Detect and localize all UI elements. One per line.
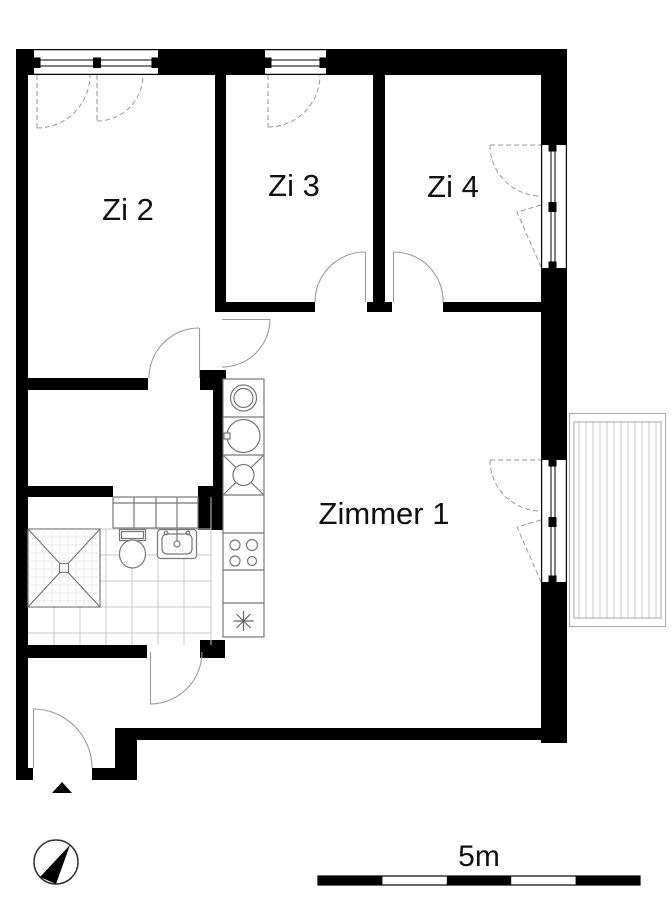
door-swing-arc bbox=[150, 652, 202, 704]
window-swing-arc bbox=[37, 75, 90, 128]
window-jamb bbox=[320, 58, 327, 69]
door-bathroom bbox=[150, 652, 202, 704]
shower-icon bbox=[28, 529, 100, 607]
door-swing-arc bbox=[33, 709, 92, 768]
window-zi2 bbox=[34, 50, 158, 128]
entrance-arrow-icon bbox=[52, 782, 72, 793]
floor-plan-page: Zi 2 Zi 3 Zi 4 Zimmer 1 5m bbox=[0, 0, 672, 908]
wall-segment bbox=[326, 49, 567, 75]
window-jamb bbox=[152, 58, 159, 69]
kitchen-counter-outline bbox=[223, 379, 264, 637]
door-zi4 bbox=[394, 252, 444, 302]
wall-segment bbox=[16, 645, 147, 658]
door-entrance bbox=[33, 709, 92, 793]
wall-segment bbox=[158, 49, 265, 75]
window-swing-arc bbox=[97, 75, 143, 121]
washbasin-icon bbox=[158, 530, 197, 559]
door-swing-arc bbox=[394, 252, 443, 302]
room-label-zi4: Zi 4 bbox=[427, 169, 479, 204]
window-jamb bbox=[549, 460, 557, 467]
walls bbox=[16, 49, 567, 780]
scale-bar: 5m bbox=[318, 840, 640, 885]
window-swing-arc bbox=[490, 460, 541, 511]
door-swing-arc bbox=[315, 252, 365, 302]
scale-bar-label: 5m bbox=[458, 840, 500, 873]
wall-segment bbox=[541, 268, 567, 460]
window-jamb bbox=[265, 58, 272, 69]
room-label-zi3: Zi 3 bbox=[268, 168, 320, 203]
door-swing-arc bbox=[149, 328, 199, 378]
wall-segment bbox=[16, 768, 33, 780]
window-mullion bbox=[549, 202, 557, 212]
window-swing-arc bbox=[268, 75, 320, 127]
toilet-icon bbox=[120, 530, 146, 569]
balcony bbox=[570, 414, 666, 627]
window-mullion bbox=[549, 517, 557, 527]
fridge-freezer-snowflake-icon bbox=[234, 611, 254, 631]
window-swing-arc bbox=[490, 145, 541, 196]
wall-segment bbox=[16, 378, 148, 390]
window-jamb bbox=[549, 576, 557, 583]
balcony-decking-hatch bbox=[579, 422, 656, 618]
bathroom-cupboard-icon bbox=[113, 497, 198, 528]
window-tilt-symbol bbox=[517, 205, 541, 267]
window-mullion bbox=[93, 58, 101, 69]
door-zi2 bbox=[149, 328, 200, 378]
floor-plan-drawing: Zi 2 Zi 3 Zi 4 Zimmer 1 5m bbox=[0, 0, 672, 908]
wall-segment bbox=[367, 302, 392, 312]
wall-segment bbox=[373, 75, 385, 302]
wall-segment bbox=[126, 728, 567, 740]
window-jamb bbox=[34, 58, 41, 69]
north-arrow-icon bbox=[34, 840, 78, 884]
kitchen-unit bbox=[223, 379, 264, 637]
window-tilt-symbol bbox=[517, 520, 541, 582]
wall-segment bbox=[200, 640, 225, 658]
wall-segment bbox=[541, 49, 567, 145]
wall-segment bbox=[443, 302, 541, 312]
door-swing-arc bbox=[222, 319, 270, 367]
bathroom bbox=[28, 497, 211, 645]
wall-segment bbox=[215, 75, 226, 312]
scale-bar-segment bbox=[447, 876, 511, 885]
wall-segment bbox=[215, 302, 315, 312]
balcony-door bbox=[490, 460, 566, 582]
window-zi3 bbox=[265, 50, 326, 127]
window-zi4 bbox=[490, 145, 566, 268]
door-hallway bbox=[222, 319, 270, 367]
window-jamb bbox=[549, 145, 557, 152]
balcony-outline bbox=[570, 414, 666, 627]
wall-segment bbox=[28, 486, 113, 497]
room-label-zimmer1: Zimmer 1 bbox=[319, 496, 450, 531]
scale-bar-segment bbox=[318, 876, 382, 885]
window-jamb bbox=[549, 262, 557, 269]
wall-segment bbox=[541, 582, 567, 743]
door-zi3 bbox=[315, 252, 366, 302]
room-label-zi2: Zi 2 bbox=[102, 192, 154, 227]
wall-segment bbox=[16, 49, 28, 780]
balcony-deck bbox=[574, 422, 661, 618]
scale-bar-segment bbox=[576, 876, 640, 885]
